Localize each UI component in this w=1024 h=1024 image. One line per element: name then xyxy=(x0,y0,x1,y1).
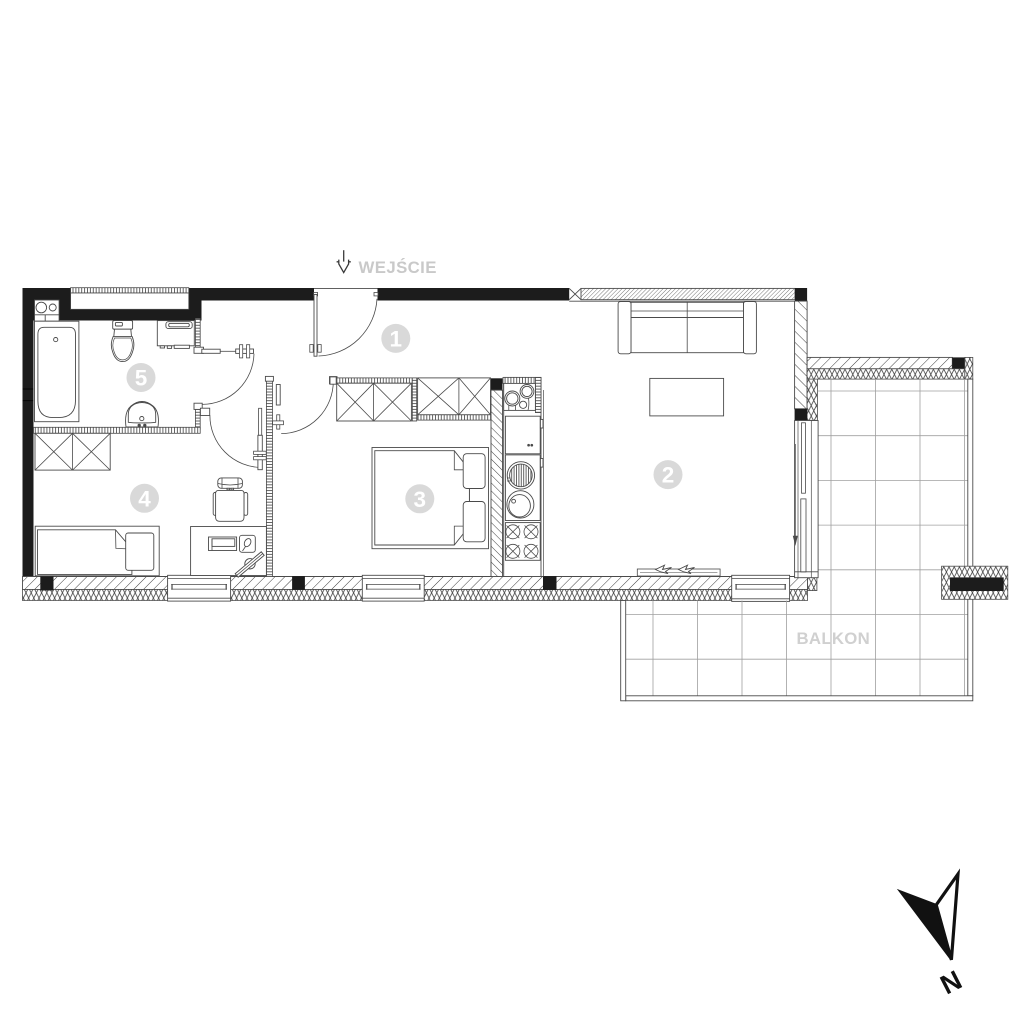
svg-text:3: 3 xyxy=(414,487,427,512)
svg-text:N: N xyxy=(936,965,967,1001)
svg-text:BALKON: BALKON xyxy=(797,629,871,648)
svg-text:2: 2 xyxy=(662,463,675,488)
svg-text:WEJŚCIE: WEJŚCIE xyxy=(359,258,437,277)
svg-text:1: 1 xyxy=(390,326,403,351)
svg-text:4: 4 xyxy=(138,486,151,511)
svg-text:5: 5 xyxy=(135,366,148,391)
